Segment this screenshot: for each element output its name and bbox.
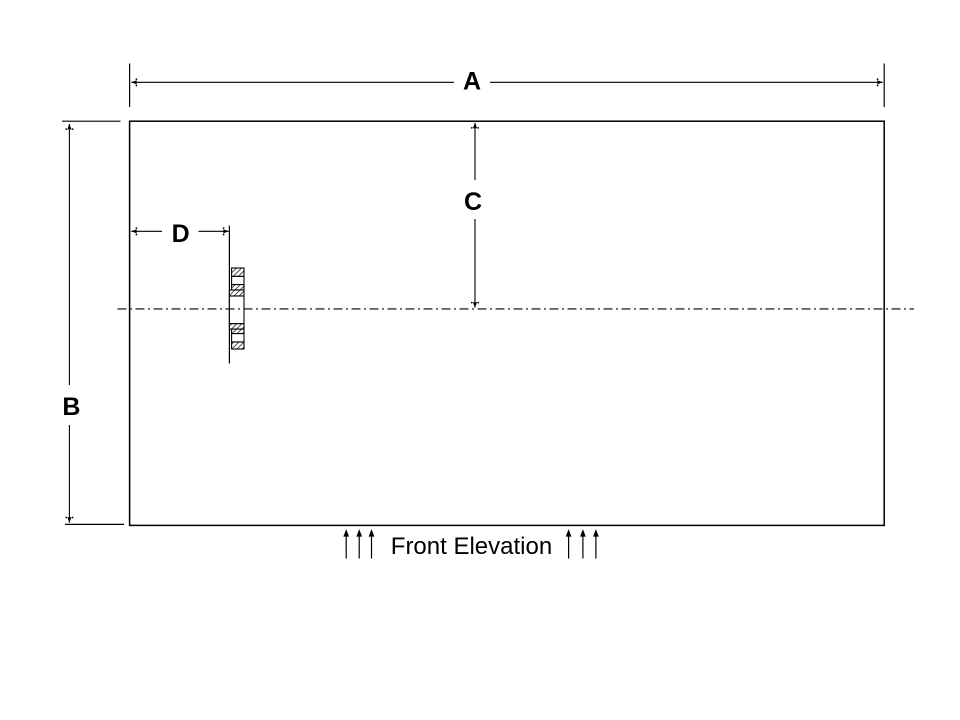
svg-text:B: B — [62, 393, 80, 421]
svg-text:D: D — [172, 220, 190, 248]
svg-text:Front Elevation: Front Elevation — [391, 533, 552, 560]
svg-text:A: A — [463, 67, 481, 95]
svg-text:C: C — [464, 188, 482, 216]
